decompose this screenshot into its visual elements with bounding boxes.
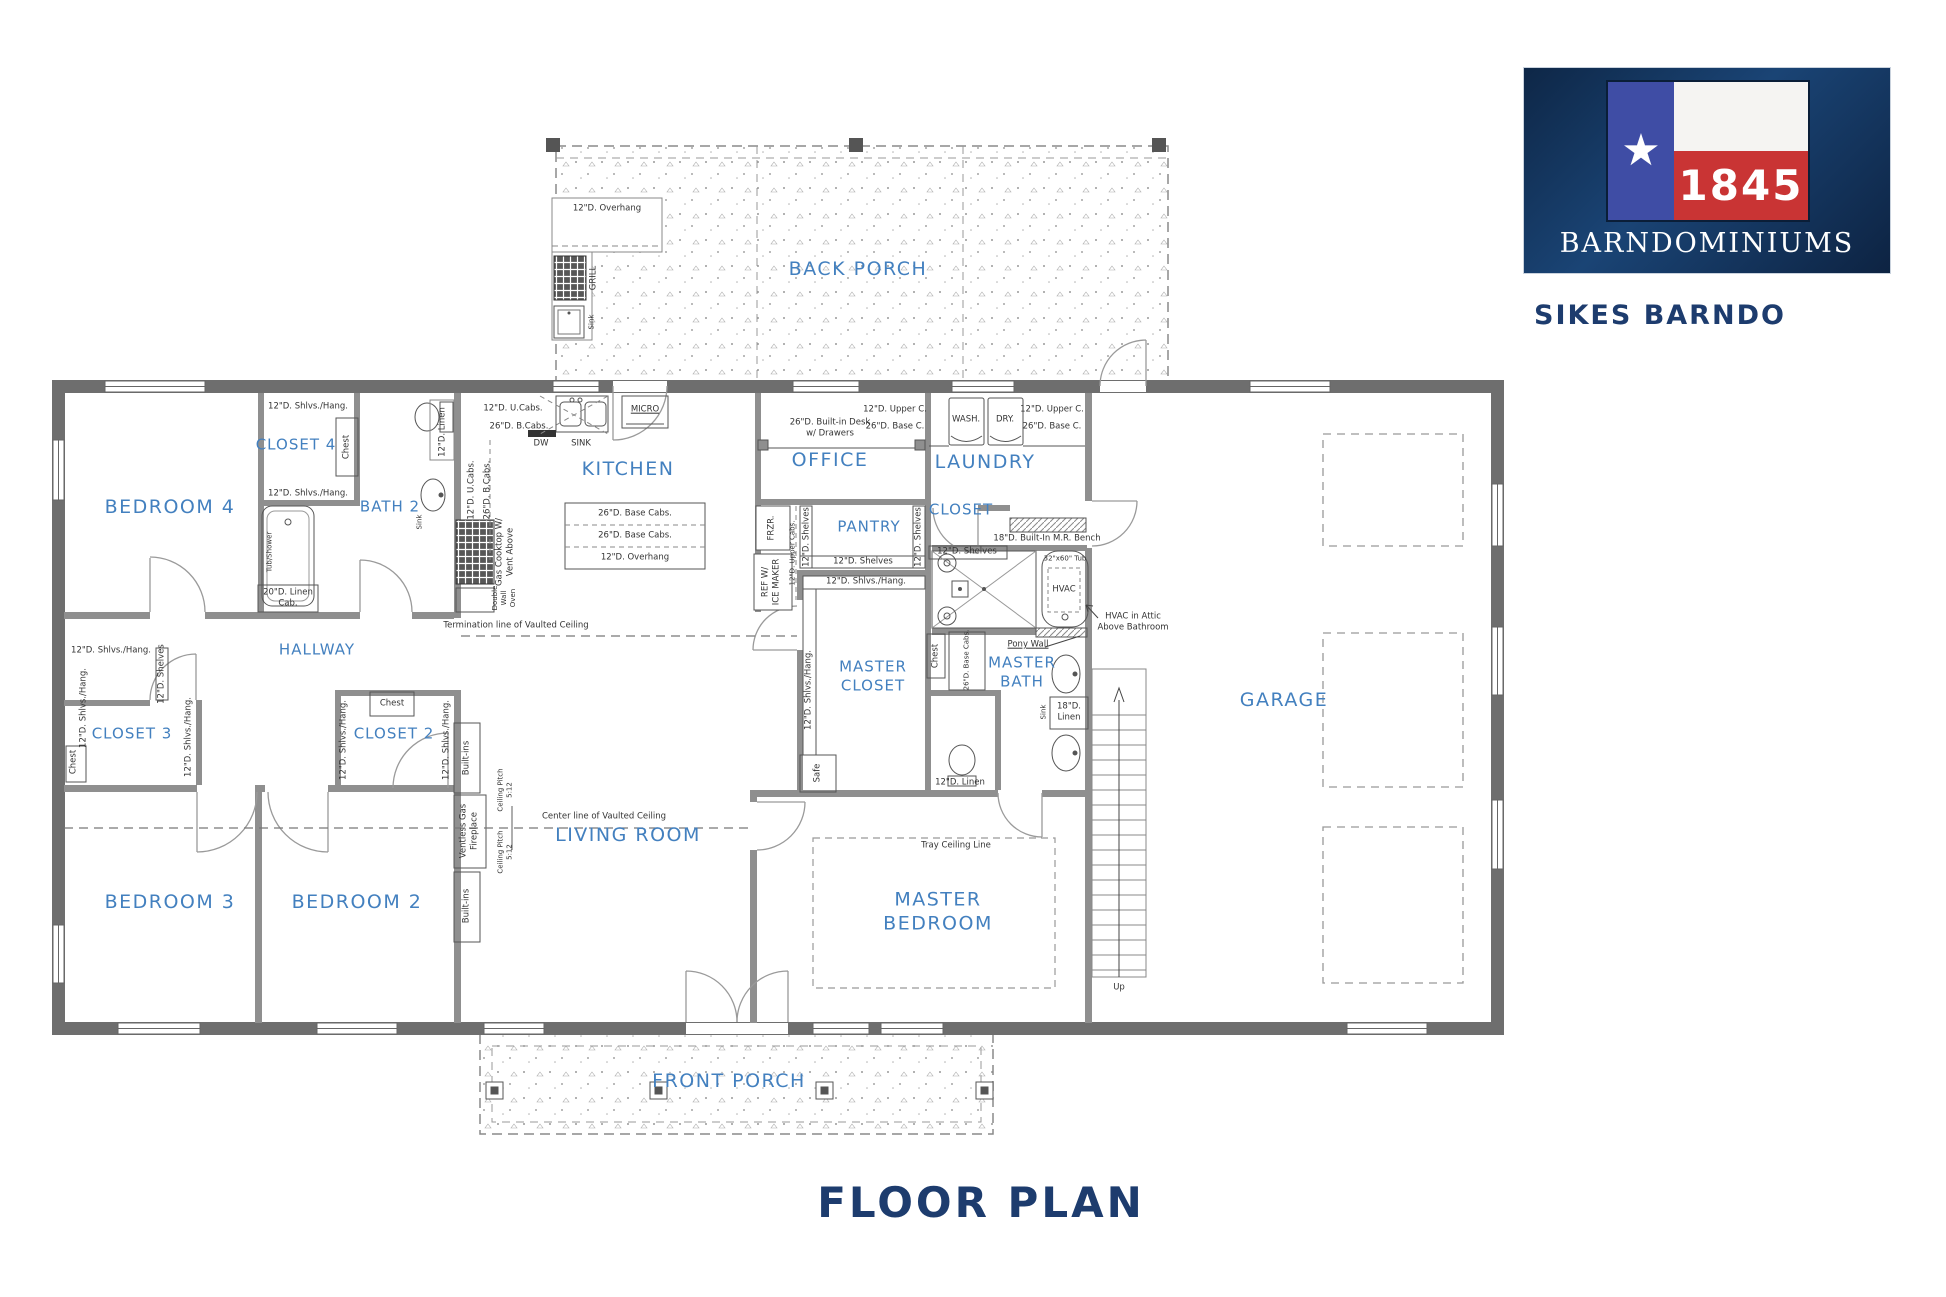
- ann-closet3-left: 12"D. Shlvs./Hang.: [79, 668, 90, 748]
- flag-blue-field: ★: [1608, 82, 1674, 220]
- ann-linen18: 18"D. Linen: [1057, 701, 1081, 722]
- ann-kitchen-bcabs-v: 26"D. B.Cabs.: [483, 461, 494, 520]
- room-label-bedroom4: BEDROOM 4: [105, 496, 236, 520]
- ann-pantry-shelf-r: 12"D. Shelves: [914, 507, 925, 567]
- room-label-master-bedroom: MASTER BEDROOM: [883, 888, 993, 936]
- ann-laundry-upper-l: 12"D. Upper C.: [863, 405, 927, 416]
- ann-termination-line: Termination line of Vaulted Ceiling: [443, 621, 588, 632]
- ann-island-base2: 26"D. Base Cabs.: [598, 531, 672, 542]
- logo-name: BARNDOMINIUMS: [1524, 228, 1890, 259]
- ann-tub-size: 32"x60" Tub: [1044, 555, 1087, 564]
- room-label-bedroom2: BEDROOM 2: [292, 891, 423, 915]
- ann-linen20-cab: 20"D. Linen Cab.: [263, 587, 313, 608]
- ann-gas-cooktop: Gas Cooktop W/ Vent Above: [494, 518, 515, 586]
- room-label-bedroom3: BEDROOM 3: [105, 891, 236, 915]
- ann-freezer: FRZR.: [767, 516, 778, 541]
- room-label-closet4: CLOSET 4: [256, 436, 337, 455]
- ann-tray-ceiling: Tray Ceiling Line: [921, 841, 991, 852]
- ann-pitch-bottom: Ceiling Pitch 5:12: [496, 830, 514, 873]
- ann-bath2-sink: Sink: [416, 515, 425, 530]
- ann-pitch-top: Ceiling Pitch 5:12: [496, 768, 514, 811]
- ann-mbath-sink: Sink: [1040, 705, 1049, 720]
- texas-flag-icon: ★ 1845: [1608, 82, 1808, 220]
- room-label-garage: GARAGE: [1240, 689, 1329, 713]
- room-label-laundry-closet: CLOSET: [929, 501, 993, 520]
- ann-kitchen-sink: SINK: [571, 439, 591, 450]
- room-label-hallway: HALLWAY: [279, 641, 355, 660]
- ann-microwave: MICRO: [631, 405, 659, 416]
- ann-porch-sink: Sink: [588, 315, 597, 330]
- flag-white-stripe: [1674, 82, 1808, 151]
- ann-kitchen-bcabs: 26"D. B.Cabs.: [490, 422, 549, 433]
- ann-laundry-base-l: 26"D. Base C.: [866, 422, 925, 433]
- ann-kitchen-ucabs-v: 12"D. U.Cabs.: [467, 460, 478, 519]
- ann-closet2-right: 12"D. Shlvs./Hang.: [442, 700, 453, 780]
- garage-storage-outlines: [1323, 434, 1463, 983]
- logo-year: 1845: [1679, 161, 1804, 210]
- ann-builtins-top: Built-ins: [462, 741, 473, 776]
- ann-hvac-attic: HVAC in Attic Above Bathroom: [1097, 611, 1168, 632]
- ann-island-base1: 26"D. Base Cabs.: [598, 509, 672, 520]
- room-label-closet2: CLOSET 2: [354, 725, 435, 744]
- ann-mcloset-chest: Chest: [931, 644, 942, 668]
- ann-fireplace: Ventless Gas Fireplace: [458, 804, 479, 858]
- ann-safe: Safe: [813, 764, 824, 783]
- room-label-laundry: LAUNDRY: [935, 451, 1036, 475]
- ann-pantry-shelf-l: 12"D. Shelves: [802, 507, 813, 567]
- ann-closet-shelf: 12"D. Shelves: [937, 547, 997, 558]
- page-title: FLOOR PLAN: [817, 1177, 1145, 1230]
- ann-dryer: DRY.: [996, 415, 1014, 426]
- ann-closet2-chest: Chest: [380, 699, 404, 710]
- ann-upper-cabs-v: 12"D. Upper Cabs.: [789, 521, 798, 586]
- ann-linen12-kitchen: 12"D. Linen: [438, 407, 449, 457]
- ann-laundry-base-r: 26"D. Base C.: [1023, 422, 1082, 433]
- room-label-master-bath: MASTER BATH: [988, 653, 1056, 691]
- ann-hvac: HVAC: [1052, 585, 1075, 596]
- room-label-back-porch: BACK PORCH: [789, 258, 928, 282]
- room-label-living-room: LIVING ROOM: [555, 824, 701, 848]
- ann-mcloset-shelf-top: 12"D. Shlvs./Hang.: [826, 577, 906, 588]
- ann-wall-oven: Double Wall Oven: [491, 586, 517, 611]
- ann-mr-bench: 18"D. Built-In M.R. Bench: [993, 534, 1100, 545]
- ann-closet2-left: 12"D. Shlvs./Hang.: [339, 700, 350, 780]
- room-label-bath2: BATH 2: [360, 498, 420, 517]
- ann-laundry-upper-r: 12"D. Upper C.: [1020, 405, 1084, 416]
- ann-closet3-shelves: 12"D. Shelves: [157, 644, 168, 704]
- room-label-front-porch: FRONT PORCH: [652, 1070, 806, 1094]
- ann-pantry-shelf-b: 12"D. Shelves: [833, 557, 893, 568]
- brand-logo: ★ 1845 BARNDOMINIUMS: [1524, 68, 1890, 273]
- ann-ref-icemaker: REF W/ ICE MAKER: [760, 559, 781, 606]
- room-label-master-closet: MASTER CLOSET: [839, 657, 907, 695]
- ann-closet4-chest: Chest: [342, 435, 353, 459]
- ann-kitchen-ucabs: 12"D. U.Cabs.: [483, 404, 542, 415]
- ann-grill: GRILL: [589, 266, 600, 290]
- ann-closet4-top: 12"D. Shlvs./Hang.: [268, 402, 348, 413]
- room-label-office: OFFICE: [792, 449, 869, 473]
- ann-linen12-toilet: 12"D. Linen: [935, 778, 985, 789]
- ann-builtins-bottom: Built-ins: [462, 889, 473, 924]
- ann-closet4-bottom: 12"D. Shlvs./Hang.: [268, 489, 348, 500]
- ann-mcloset-shelf-l: 12"D. Shlvs./Hang.: [804, 650, 815, 730]
- ann-closet3-chest: Chest: [69, 750, 80, 774]
- flag-star-icon: ★: [1621, 129, 1660, 173]
- ann-island-overhang: 12"D. Overhang: [601, 553, 669, 564]
- ann-closet3-right: 12"D. Shlvs./Hang.: [184, 697, 195, 777]
- ann-closet3-top: 12"D. Shlvs./Hang.: [71, 646, 151, 657]
- ann-center-line: Center line of Vaulted Ceiling: [542, 812, 666, 823]
- room-label-kitchen: KITCHEN: [582, 458, 675, 482]
- room-label-closet3: CLOSET 3: [92, 725, 173, 744]
- ann-stairs-up: Up: [1113, 983, 1125, 994]
- ann-mbath-basecabs: 26"D. Base Cabs.: [963, 630, 972, 691]
- ann-porch-overhang: 12"D. Overhang: [573, 204, 641, 215]
- ann-pony-wall: Pony Wall: [1008, 640, 1049, 651]
- floor-plan-page: BACK PORCH FRONT PORCH KITCHEN OFFICE LA…: [0, 0, 1946, 1297]
- ann-washer: WASH.: [952, 415, 980, 426]
- ann-dishwasher: DW: [534, 439, 549, 450]
- ann-builtin-desk: 26"D. Built-in Desk w/ Drawers: [790, 417, 871, 438]
- flag-red-stripe: 1845: [1674, 151, 1808, 220]
- room-label-pantry: PANTRY: [837, 518, 900, 537]
- stairs: [1092, 669, 1146, 977]
- plan-name: SIKES BARNDO: [1534, 300, 1786, 331]
- ann-tub-shower: Tub/Shower: [266, 532, 275, 573]
